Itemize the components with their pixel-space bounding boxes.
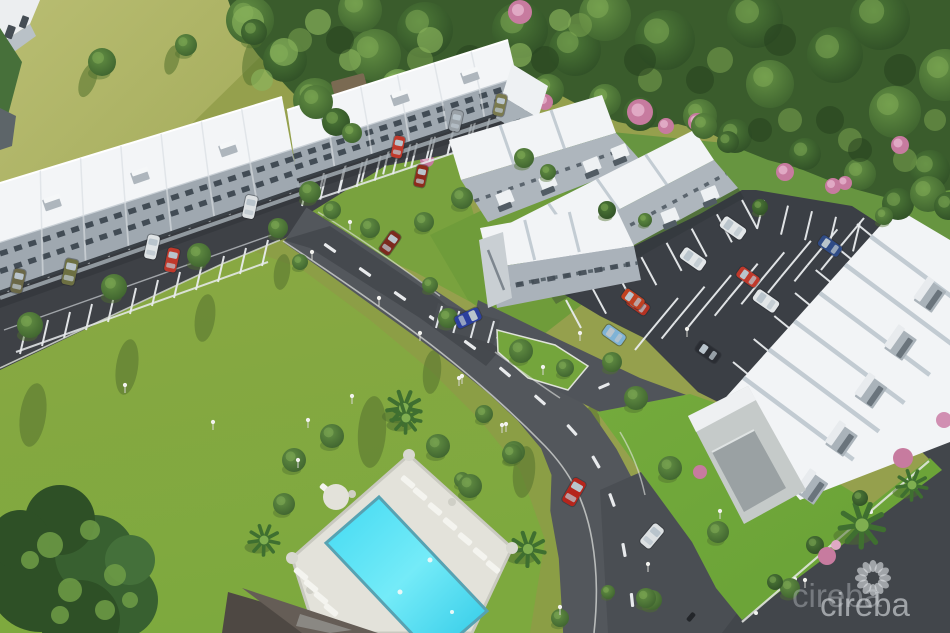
svg-text:cireba: cireba <box>792 577 883 614</box>
